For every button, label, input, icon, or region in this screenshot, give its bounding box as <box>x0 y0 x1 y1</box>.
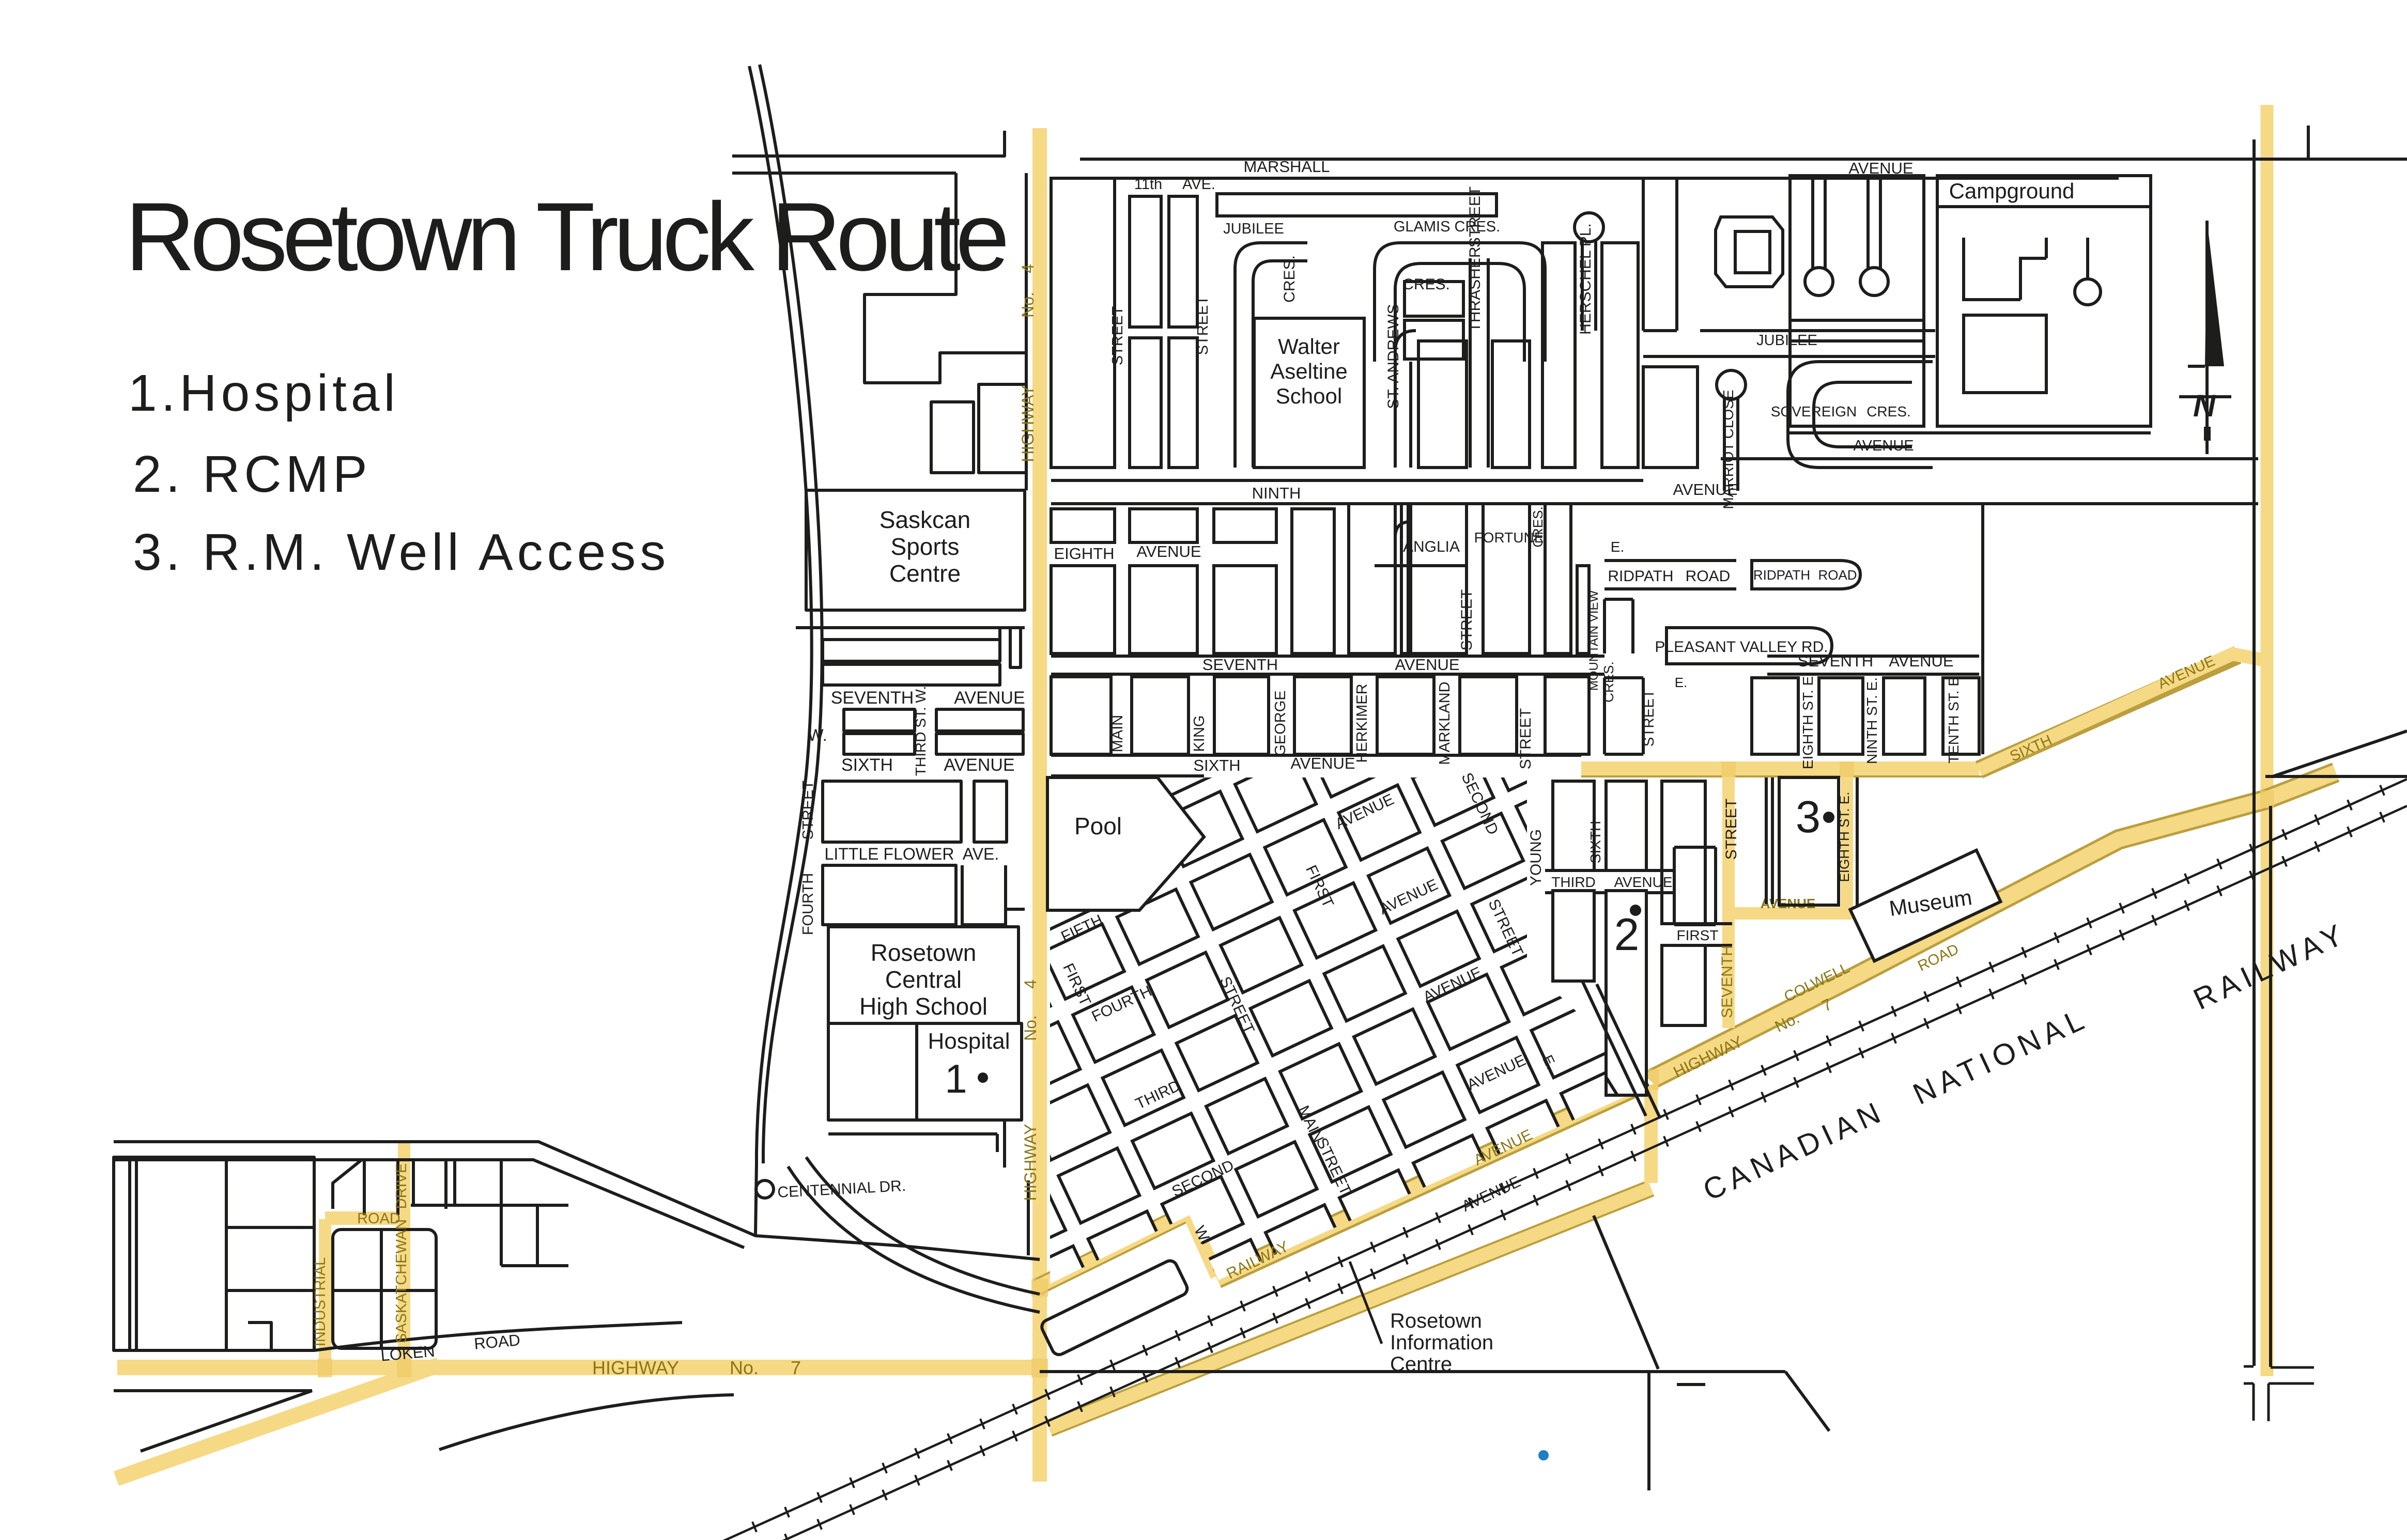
svg-text:EIGHTH ST. E.: EIGHTH ST. E. <box>1800 672 1816 769</box>
svg-text:FIRST: FIRST <box>1677 927 1719 943</box>
svg-text:3. R.M. Well Access: 3. R.M. Well Access <box>133 523 670 581</box>
svg-text:STREET: STREET <box>1641 690 1657 746</box>
svg-text:NINTH: NINTH <box>1252 484 1301 502</box>
svg-text:MARSHALL: MARSHALL <box>1243 158 1330 176</box>
svg-text:SEVENTH: SEVENTH <box>1719 945 1736 1018</box>
svg-text:EIGHTH: EIGHTH <box>1054 545 1114 563</box>
svg-text:HIGHWAY: HIGHWAY <box>592 1357 679 1378</box>
svg-text:Rosetown: Rosetown <box>871 939 977 966</box>
svg-text:ROAD: ROAD <box>1686 568 1731 585</box>
svg-text:1.Hospital: 1.Hospital <box>128 364 399 422</box>
svg-text:2: 2 <box>1614 909 1640 960</box>
svg-text:STREET: STREET <box>1109 306 1126 366</box>
svg-text:HIGHWAY: HIGHWAY <box>1021 1124 1040 1201</box>
svg-text:GEORGE: GEORGE <box>1272 690 1289 756</box>
svg-text:Sports: Sports <box>891 533 960 560</box>
svg-text:SIXTH: SIXTH <box>1587 821 1603 863</box>
svg-text:11th: 11th <box>1134 176 1162 193</box>
svg-text:Rosetown: Rosetown <box>1390 1310 1482 1332</box>
svg-text:Central: Central <box>885 966 962 993</box>
svg-text:MAIN: MAIN <box>1109 715 1126 753</box>
svg-text:INDUSTRIAL: INDUSTRIAL <box>312 1257 329 1346</box>
svg-text:ROAD: ROAD <box>1818 567 1857 583</box>
svg-text:KING: KING <box>1191 715 1208 752</box>
svg-text:CRES.: CRES. <box>1530 506 1546 547</box>
svg-text:No.: No. <box>1021 1015 1040 1041</box>
svg-text:Campground: Campground <box>1949 179 2075 203</box>
svg-text:DRIVE: DRIVE <box>393 1163 410 1209</box>
svg-text:STREET: STREET <box>1517 708 1534 769</box>
svg-text:AVENUE: AVENUE <box>1614 874 1672 890</box>
svg-text:GLAMIS CRES.: GLAMIS CRES. <box>1394 219 1500 235</box>
svg-text:Rosetown Truck Route: Rosetown Truck Route <box>125 182 1006 291</box>
svg-text:AVENUE: AVENUE <box>1290 754 1355 772</box>
svg-text:YOUNG: YOUNG <box>1527 829 1545 886</box>
svg-text:N: N <box>2193 388 2216 423</box>
svg-text:RIDPATH: RIDPATH <box>1608 568 1673 585</box>
svg-text:E.: E. <box>1675 675 1688 690</box>
svg-text:Centre: Centre <box>889 560 961 587</box>
svg-text:SEVENTH: SEVENTH <box>1202 656 1278 674</box>
svg-text:MARKLAND: MARKLAND <box>1437 681 1453 765</box>
svg-text:No.: No. <box>1019 292 1037 318</box>
svg-text:AVENUE: AVENUE <box>954 688 1025 708</box>
svg-text:NINTH ST. E.: NINTH ST. E. <box>1864 677 1880 764</box>
svg-text:SEVENTH: SEVENTH <box>1798 652 1873 670</box>
svg-text:2. RCMP: 2. RCMP <box>133 445 372 503</box>
svg-text:SIXTH: SIXTH <box>841 755 893 775</box>
svg-text:THRASHER: THRASHER <box>1467 246 1484 332</box>
svg-text:4: 4 <box>1021 979 1040 989</box>
svg-text:Saskcan: Saskcan <box>880 506 970 533</box>
svg-text:LITTLE: LITTLE <box>825 845 879 863</box>
svg-text:SOVEREIGN: SOVEREIGN <box>1771 403 1857 419</box>
svg-text:CRES.: CRES. <box>1281 255 1298 303</box>
svg-text:JUBILEE: JUBILEE <box>1223 221 1284 237</box>
svg-text:ST. ANDREWS: ST. ANDREWS <box>1385 304 1402 409</box>
svg-text:Pool: Pool <box>1074 813 1122 839</box>
svg-text:AVENUE: AVENUE <box>1889 652 1953 670</box>
svg-text:ANGLIA: ANGLIA <box>1403 538 1460 555</box>
svg-text:SASKATCHEWAN: SASKATCHEWAN <box>393 1219 410 1343</box>
svg-text:7: 7 <box>791 1357 801 1378</box>
svg-text:FOURTH: FOURTH <box>800 873 816 935</box>
svg-text:AVENUE: AVENUE <box>1673 480 1737 499</box>
svg-text:CRES.: CRES. <box>1402 276 1450 293</box>
svg-text:School: School <box>1276 384 1342 408</box>
svg-text:Hospital: Hospital <box>928 1029 1010 1054</box>
svg-text:1: 1 <box>945 1056 967 1101</box>
svg-text:TENTH ST. E.: TENTH ST. E. <box>1946 673 1962 764</box>
svg-text:W.: W. <box>808 726 827 744</box>
svg-text:SIXTH: SIXTH <box>1193 756 1240 774</box>
svg-text:AVENUE: AVENUE <box>944 755 1014 775</box>
svg-text:HERSCHEL PL.: HERSCHEL PL. <box>1577 223 1594 335</box>
svg-text:4: 4 <box>1019 264 1037 273</box>
svg-text:Information: Information <box>1390 1331 1493 1354</box>
svg-text:STREET: STREET <box>800 781 816 840</box>
svg-text:AVENUE: AVENUE <box>1853 438 1914 454</box>
svg-text:AVE.: AVE. <box>963 845 999 863</box>
svg-text:AVE.: AVE. <box>1182 176 1215 193</box>
svg-text:THIRD ST. W.: THIRD ST. W. <box>913 686 929 776</box>
svg-text:Aseltine: Aseltine <box>1270 359 1347 383</box>
svg-text:Walter: Walter <box>1278 334 1340 359</box>
svg-text:High School: High School <box>859 993 988 1020</box>
svg-text:3: 3 <box>1796 792 1820 842</box>
svg-text:E.: E. <box>1611 539 1624 555</box>
svg-text:SEVENTH: SEVENTH <box>831 688 914 708</box>
svg-text:THIRD: THIRD <box>1551 874 1596 890</box>
svg-text:HERKIMER: HERKIMER <box>1354 683 1370 763</box>
svg-text:STREET: STREET <box>1723 799 1740 860</box>
svg-text:AVENUE: AVENUE <box>1395 656 1459 674</box>
svg-text:STREET: STREET <box>1195 296 1211 355</box>
svg-text:FLOWER: FLOWER <box>884 845 954 863</box>
svg-text:AVENUE: AVENUE <box>1136 542 1201 561</box>
svg-text:STREET: STREET <box>1458 589 1475 650</box>
svg-text:No.: No. <box>730 1357 759 1378</box>
svg-text:CRES.: CRES. <box>1866 403 1911 419</box>
svg-text:STREET: STREET <box>1467 186 1484 247</box>
svg-text:HIGHWAY: HIGHWAY <box>1019 385 1037 462</box>
svg-text:RIDPATH: RIDPATH <box>1753 567 1810 583</box>
svg-text:ROAD: ROAD <box>357 1210 400 1227</box>
